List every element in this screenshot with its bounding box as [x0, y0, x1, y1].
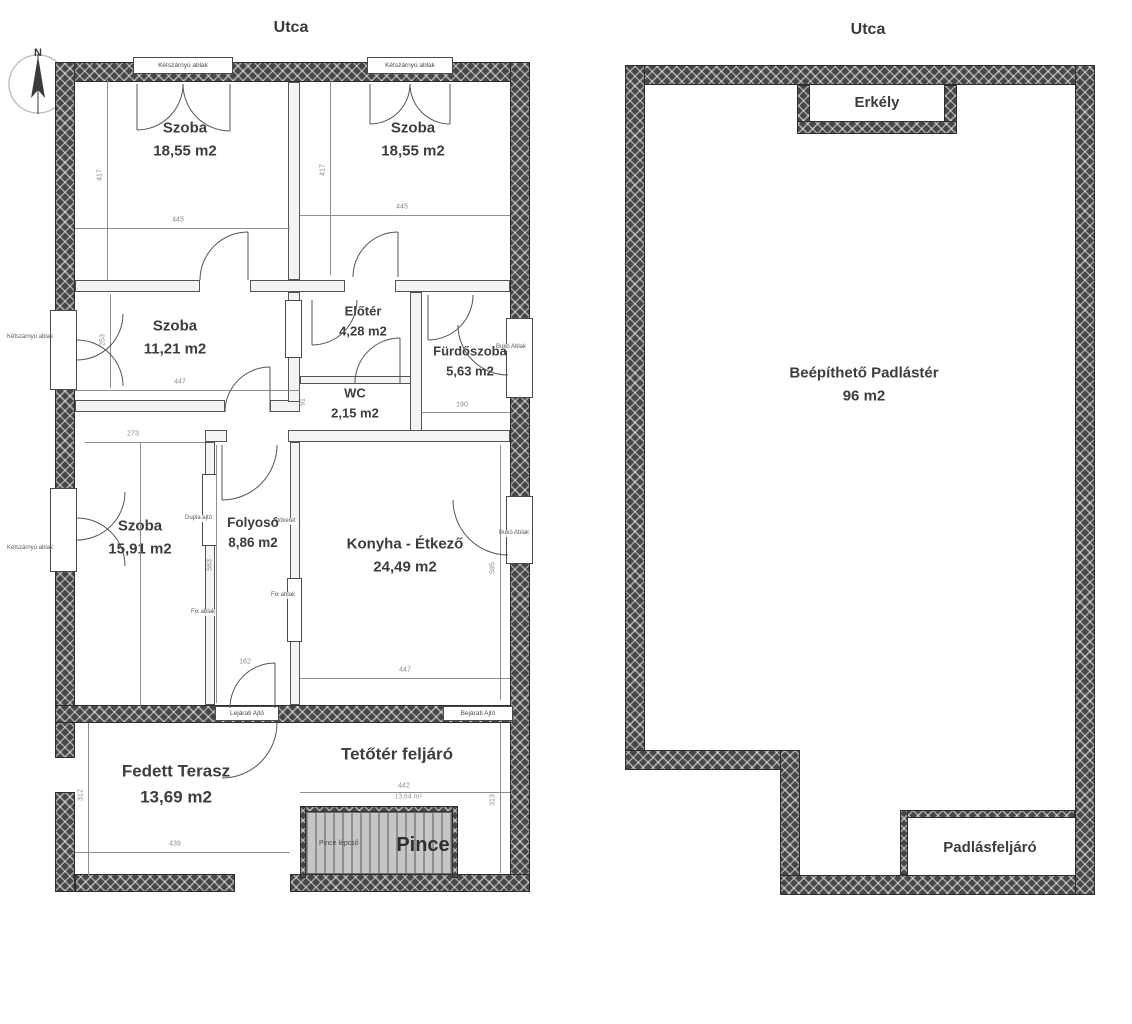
street-label-ground: Utca — [274, 19, 309, 37]
dimension-label: 190 — [456, 402, 468, 409]
window-fixed — [287, 578, 302, 642]
room-label-szoba2: Szoba 18,55 m2 — [381, 118, 444, 163]
wall-pince — [452, 806, 458, 878]
dimension-label: 273 — [127, 431, 139, 438]
wall — [55, 386, 75, 491]
wall — [1075, 65, 1095, 895]
wall — [625, 65, 645, 770]
dimension-label: 447 — [174, 379, 186, 386]
wall — [625, 750, 800, 770]
dim-line — [107, 80, 108, 280]
wall — [55, 792, 75, 892]
room-label-padlasfeljaro: Padlásfeljáró — [943, 837, 1036, 860]
window-label: Kétszárnyú ablak — [158, 62, 208, 69]
compass-north-letter: N — [34, 47, 42, 59]
door-arc — [222, 723, 277, 778]
room-label-furdoszoba: Fürdőszoba 5,63 m2 — [433, 342, 507, 381]
dimension-label: 417 — [320, 164, 327, 176]
dimension-label: 13,64 m² — [394, 794, 422, 801]
wall — [780, 750, 800, 895]
wall-interior — [250, 280, 345, 292]
window-label: Fix ablak — [270, 592, 296, 599]
wall-balcony — [797, 85, 810, 125]
dim-line — [300, 678, 510, 679]
room-label-terasz: Fedett Terasz 13,69 m2 — [122, 759, 230, 810]
window-swing-arc — [77, 340, 123, 386]
wall — [55, 568, 75, 758]
dim-line — [330, 80, 331, 275]
door-arc — [222, 445, 277, 500]
door-label: Dupla ajtó — [184, 515, 213, 522]
dimension-label: 595 — [490, 562, 497, 574]
wall-padlasfeljaro — [900, 810, 908, 875]
dimension-label: 312 — [78, 789, 85, 801]
dimension-label: 162 — [239, 659, 251, 666]
wall-interior — [395, 280, 510, 292]
window-label: Kétszárnyú ablak — [6, 334, 54, 341]
room-label-pince: Pince — [396, 830, 449, 860]
wall-interior — [290, 442, 300, 705]
wall — [780, 875, 1095, 895]
street-label-attic: Utca — [851, 21, 886, 39]
room-label-tetoter: Tetőtér feljáró — [341, 741, 453, 767]
room-label-erkely: Erkély — [854, 92, 899, 115]
dimension-label: 439 — [169, 841, 181, 848]
wall-balcony — [797, 121, 957, 134]
wall-interior — [75, 400, 225, 412]
room-label-folyoso: Folyosó 8,86 m2 — [227, 513, 279, 554]
window — [506, 318, 533, 398]
dimension-label: 442 — [398, 783, 410, 790]
wall-padlasfeljaro — [900, 810, 1075, 818]
wall-interior — [75, 280, 200, 292]
dim-line — [85, 442, 205, 443]
dim-line — [140, 442, 141, 710]
room-label-szoba1: Szoba 18,55 m2 — [153, 118, 216, 163]
window-label: Kétszárnyú ablak — [6, 545, 54, 552]
window-label: Bukó Ablak — [498, 530, 530, 537]
window-label: Kétszárnyú ablak — [385, 62, 435, 69]
dimension-label: 445 — [396, 204, 408, 211]
wall — [290, 874, 530, 892]
door-arc — [230, 663, 275, 708]
wall-interior — [288, 430, 510, 442]
room-label-szoba3: Szoba 11,21 m2 — [144, 316, 207, 361]
dimension-label: 313 — [490, 794, 497, 806]
wall-balcony — [944, 85, 957, 125]
dim-line — [500, 723, 501, 873]
door-arc — [428, 295, 473, 340]
door-label-box: Bejárati Ajtó — [443, 706, 513, 721]
door-label: Lejárati Ajtó — [230, 710, 264, 717]
window-label: Fix ablak — [190, 609, 216, 616]
dim-line — [110, 294, 111, 388]
dimension-label: 417 — [97, 169, 104, 181]
wall — [510, 62, 530, 892]
window-label-box: Kétszárnyú ablak — [367, 57, 453, 74]
wall-interior — [410, 292, 422, 432]
dimension-label: 583 — [207, 559, 214, 571]
door-arc — [353, 232, 398, 277]
dim-line — [75, 852, 290, 853]
dimension-label: 447 — [399, 667, 411, 674]
dim-line — [75, 390, 300, 391]
window-fixed — [202, 474, 217, 546]
dimension-label: 91 — [300, 398, 307, 406]
wall-interior — [288, 82, 300, 280]
wall — [75, 874, 235, 892]
door-frame — [285, 300, 302, 358]
window-label-box: Kétszárnyú ablak — [133, 57, 233, 74]
room-label-konyha: Konyha - Étkező 24,49 m2 — [347, 534, 464, 579]
room-label-padlaster: Beépíthető Padlástér 96 m2 — [789, 363, 938, 408]
stairs-label: Pince lépcső — [318, 840, 360, 848]
door-label-box: Lejárati Ajtó — [215, 706, 279, 721]
room-label-wc: WC 2,15 m2 — [331, 384, 379, 423]
door-arc — [200, 232, 248, 280]
wall — [55, 62, 75, 312]
dim-line — [422, 412, 510, 413]
wall — [625, 65, 1095, 85]
door-label: Bejárati Ajtó — [461, 710, 496, 717]
floor-plan-canvas: Utca Utca N Kétszárnyú ablak Kétszárnyú … — [0, 0, 1132, 1024]
dim-line — [500, 445, 501, 700]
dim-line — [216, 445, 217, 703]
dimension-label: 253 — [100, 334, 107, 346]
window — [50, 310, 77, 390]
wall — [55, 62, 530, 82]
dimension-label: 445 — [172, 217, 184, 224]
wall-interior — [205, 430, 227, 442]
dim-line — [75, 228, 290, 229]
room-label-eloter: Előtér 4,28 m2 — [339, 302, 387, 341]
dim-line — [300, 215, 510, 216]
window — [50, 488, 77, 572]
